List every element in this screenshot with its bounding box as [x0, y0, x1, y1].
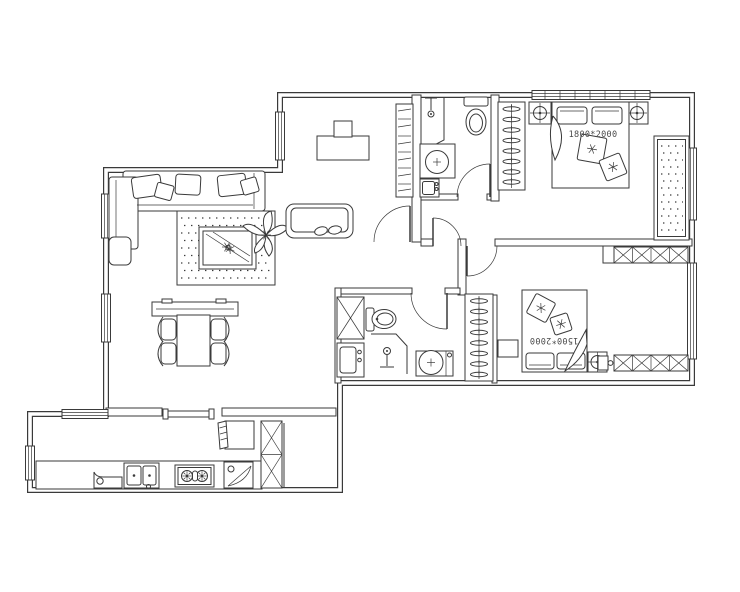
refrigerator	[218, 421, 254, 449]
toilet-icon	[366, 308, 396, 331]
bed-size-label: 1800*2000	[569, 130, 618, 140]
washbasin-icon	[416, 351, 453, 377]
nightstand	[529, 102, 551, 124]
dining-chair	[158, 317, 176, 342]
door-bedroom2	[467, 246, 497, 276]
door-study	[374, 206, 410, 242]
coffee-table	[199, 227, 256, 269]
window-master-top	[532, 91, 650, 100]
window-kitchen-top	[62, 410, 108, 419]
kitchen-sink-icon	[124, 463, 159, 489]
window-study-left	[276, 112, 285, 160]
shower-stall	[371, 334, 407, 374]
window-living-left-2	[102, 294, 111, 342]
pillow	[526, 353, 554, 369]
bedroom-2: 1500*2000	[465, 247, 688, 381]
bed-master: 1800*2000	[550, 102, 629, 188]
washing-machine-icon	[420, 179, 439, 197]
pass-through-shelf	[163, 409, 214, 419]
daybed	[286, 204, 353, 238]
dining-chair	[211, 317, 229, 342]
dining-table	[177, 315, 210, 366]
door-bathroom1	[457, 164, 490, 197]
dotted-mat	[654, 136, 689, 240]
tv-cabinet	[152, 299, 238, 316]
bookshelf	[396, 104, 413, 197]
dining-chair	[211, 341, 229, 366]
bed-size-label: 1500*2000	[530, 335, 579, 345]
bathroom-2	[337, 297, 453, 377]
door-bathroom2	[411, 293, 447, 329]
toilet-icon	[464, 97, 488, 135]
pillow	[557, 107, 587, 124]
washing-machine-icon	[337, 343, 364, 377]
bathroom-1	[420, 97, 488, 197]
kitchen	[36, 409, 282, 489]
pillow	[592, 107, 622, 124]
window-bedroom2-right	[688, 263, 697, 359]
gas-stove-icon	[175, 465, 214, 487]
wardrobe-master	[498, 102, 525, 190]
bay-window-cabinet-bottom	[598, 355, 688, 371]
desk	[317, 121, 369, 160]
bed-second: 1500*2000	[522, 290, 587, 372]
washbasin-icon	[420, 144, 455, 178]
master-bedroom: 1800*2000	[498, 102, 689, 240]
dining-chair	[158, 341, 176, 366]
shower-head-icon	[425, 98, 437, 117]
nightstand	[498, 340, 518, 357]
study-room	[286, 104, 413, 238]
corner-cabinet	[224, 462, 253, 488]
door-master-suite	[433, 218, 461, 246]
tall-x-cabinet	[261, 421, 282, 488]
monitor	[334, 121, 352, 137]
living-room	[109, 171, 288, 316]
window-kitchen-left	[26, 446, 35, 480]
floor-plan-canvas: 1800*2000	[0, 0, 740, 592]
floor-plan-drawing: 1800*2000	[0, 0, 740, 592]
side-table	[109, 237, 131, 265]
x-storage-cabinet	[337, 297, 364, 339]
wardrobe-bedroom2	[465, 294, 493, 381]
bay-window-cabinet-top	[614, 247, 688, 263]
dining-area	[158, 315, 229, 366]
